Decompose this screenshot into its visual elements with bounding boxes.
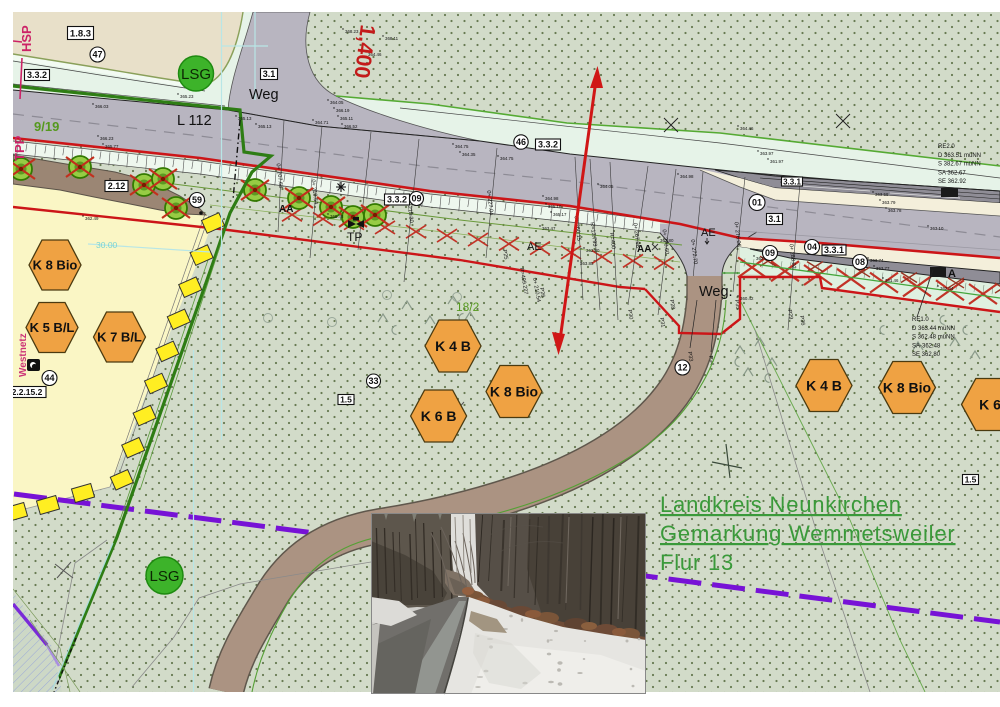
svg-text:365.13: 365.13	[238, 116, 252, 121]
svg-text:365.16: 365.16	[548, 204, 562, 209]
svg-text:S 362.48 müNN: S 362.48 müNN	[912, 335, 955, 341]
svg-text:365.48: 365.48	[330, 214, 344, 219]
svg-text:364.46: 364.46	[740, 126, 754, 131]
svg-text:33: 33	[368, 376, 378, 386]
svg-text:363.58: 363.58	[875, 192, 889, 197]
svg-text:08: 08	[855, 257, 865, 267]
svg-text:04: 04	[807, 242, 817, 252]
svg-text:360.42: 360.42	[740, 296, 754, 301]
svg-text:18/2: 18/2	[456, 300, 480, 314]
svg-text:365.11: 365.11	[340, 116, 354, 121]
svg-text:363.47: 363.47	[542, 226, 556, 231]
svg-text:364.75: 364.75	[500, 156, 514, 161]
svg-text:SE 362.80: SE 362.80	[912, 352, 941, 358]
svg-text:K 8 Bio: K 8 Bio	[33, 258, 78, 273]
svg-text:RE2.0: RE2.0	[938, 144, 955, 150]
svg-text:3.3.1: 3.3.1	[824, 245, 844, 255]
svg-text:AA: AA	[637, 244, 651, 255]
svg-text:364.05: 364.05	[600, 184, 614, 189]
svg-text:366.19: 366.19	[336, 108, 350, 113]
svg-text:Gemarkung Wemmetsweiler: Gemarkung Wemmetsweiler	[660, 521, 956, 546]
svg-text:1.5: 1.5	[965, 475, 977, 485]
svg-text:366.52: 366.52	[344, 124, 358, 129]
svg-text:363.74: 363.74	[870, 258, 884, 263]
svg-text:9/19: 9/19	[34, 119, 59, 134]
svg-text:LSG: LSG	[181, 66, 211, 83]
svg-text:361.97: 361.97	[770, 159, 784, 164]
svg-text:363.85: 363.85	[580, 261, 594, 266]
svg-text:59: 59	[192, 195, 202, 205]
svg-text:SE 362.92: SE 362.92	[938, 179, 967, 185]
svg-text:44: 44	[44, 373, 54, 383]
svg-text:Weg: Weg	[249, 87, 279, 103]
svg-text:368.11: 368.11	[385, 36, 399, 41]
svg-text:3.3.2: 3.3.2	[538, 140, 558, 150]
svg-text:D 363.51 müNN: D 363.51 müNN	[938, 153, 981, 159]
svg-text:K 4 B: K 4 B	[806, 378, 842, 394]
svg-text:LSG: LSG	[149, 568, 179, 585]
svg-text:09: 09	[765, 248, 775, 258]
svg-text:AA: AA	[279, 204, 293, 215]
svg-text:364.05: 364.05	[330, 100, 344, 105]
svg-text:363.78: 363.78	[888, 208, 902, 213]
svg-text:364.35: 364.35	[462, 152, 476, 157]
svg-text:3.1: 3.1	[768, 214, 781, 224]
svg-text:365.77: 365.77	[105, 144, 119, 149]
svg-text:366.03: 366.03	[95, 104, 109, 109]
svg-text:12: 12	[677, 363, 687, 373]
svg-text:L 112: L 112	[177, 113, 212, 129]
svg-text:364.71: 364.71	[315, 120, 329, 125]
svg-text:HSP: HSP	[19, 25, 34, 52]
svg-text:SA 362.67: SA 362.67	[938, 170, 966, 176]
svg-text:SA-362.48: SA-362.48	[912, 343, 941, 349]
svg-text:3.3.2: 3.3.2	[27, 70, 47, 80]
svg-text:30.00: 30.00	[96, 240, 118, 250]
svg-text:1.8.3: 1.8.3	[70, 28, 91, 39]
svg-text:365.13: 365.13	[258, 124, 272, 129]
svg-text:364.98: 364.98	[545, 196, 559, 201]
svg-text:Westnetz: Westnetz	[18, 333, 29, 377]
svg-text:3.3.1: 3.3.1	[783, 177, 801, 186]
svg-text:2.12: 2.12	[108, 181, 126, 191]
svg-text:362.80: 362.80	[586, 248, 600, 253]
svg-text:3.1: 3.1	[263, 69, 276, 79]
svg-text:1.5: 1.5	[340, 395, 352, 405]
svg-text:3.3.2: 3.3.2	[387, 195, 407, 205]
svg-text:361.46: 361.46	[885, 278, 899, 283]
svg-text:K 6: K 6	[979, 397, 1000, 413]
svg-text:TPP: TPP	[12, 135, 27, 161]
svg-text:K 8 Bio: K 8 Bio	[883, 380, 931, 396]
svg-text:364.75: 364.75	[455, 144, 469, 149]
svg-text:Weg.: Weg.	[699, 284, 733, 300]
svg-text:46: 46	[516, 137, 526, 147]
svg-text:365.17: 365.17	[553, 212, 567, 217]
svg-text:362.44: 362.44	[940, 286, 954, 291]
svg-text:K 4 B: K 4 B	[435, 338, 471, 354]
svg-text:363.10: 363.10	[930, 226, 944, 231]
svg-text:RE1.0: RE1.0	[912, 317, 929, 323]
svg-text:K 5 B/L: K 5 B/L	[30, 320, 75, 335]
svg-text:2.2.15.2: 2.2.15.2	[12, 387, 43, 397]
svg-text:365.23: 365.23	[180, 94, 194, 99]
svg-text:363.97: 363.97	[760, 151, 774, 156]
svg-text:K 6 B: K 6 B	[421, 408, 457, 424]
svg-text:Landkreis Neunkirchen: Landkreis Neunkirchen	[660, 492, 902, 517]
svg-text:47: 47	[92, 50, 102, 60]
svg-text:K 8 Bio: K 8 Bio	[490, 384, 538, 400]
svg-text:S 382.67 müNN: S 382.67 müNN	[938, 162, 981, 168]
svg-text:K 7 B/L: K 7 B/L	[97, 330, 142, 345]
svg-text:A: A	[948, 268, 956, 280]
svg-text:D 363.44 müNN: D 363.44 müNN	[912, 326, 955, 332]
svg-text:09: 09	[411, 194, 421, 204]
svg-text:AE: AE	[527, 241, 542, 253]
svg-text:366.23: 366.23	[100, 136, 114, 141]
svg-text:363.77: 363.77	[876, 266, 890, 271]
svg-text:362.80: 362.80	[660, 238, 674, 243]
svg-text:01: 01	[752, 198, 762, 208]
svg-text:363.79: 363.79	[882, 200, 896, 205]
svg-text:362.49: 362.49	[85, 216, 99, 221]
svg-text:AE: AE	[701, 227, 716, 239]
svg-text:364.98: 364.98	[680, 174, 694, 179]
svg-text:TP: TP	[347, 230, 362, 244]
svg-text:Flur 13: Flur 13	[660, 550, 734, 575]
